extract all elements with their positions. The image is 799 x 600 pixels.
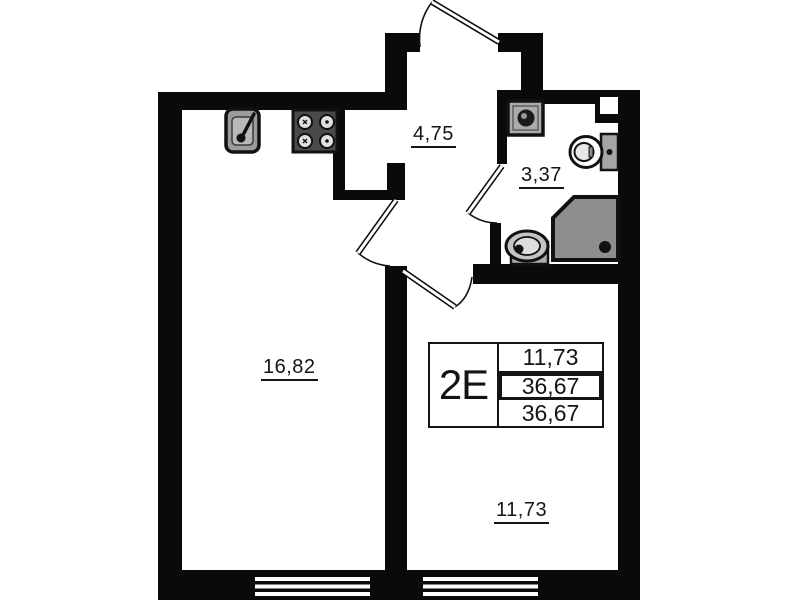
shower-icon [553,197,618,260]
toilet-icon [570,134,618,170]
right-wall [618,90,640,600]
washing-machine-icon [508,101,543,135]
bedroom-door [403,271,472,307]
unit-areas: 11,73 36,67 36,67 [499,344,602,426]
unit-total-area: 36,67 [499,373,602,400]
bedroom-area-label: 11,73 [494,500,549,524]
top-wall [158,92,407,110]
entrance-jamb-left [385,33,420,52]
unit-type-label: 2E [430,344,499,426]
hallway-area-label: 4,75 [411,124,456,148]
kitchen-door [358,200,396,266]
kitchen-living-room-area-label: 16,82 [261,357,318,381]
entrance-door [420,2,500,47]
bathroom-door [468,166,502,223]
window-right-icon [423,577,538,596]
vent-shaft-icon [600,97,618,114]
vestibule-right-wall [521,33,543,94]
left-wall [158,92,182,600]
bathroom-sink-icon [506,231,548,264]
floor-plan-drawing [0,0,799,600]
unit-overall-area: 36,67 [499,400,602,427]
stove-icon [293,110,337,152]
unit-living-area: 11,73 [499,344,602,373]
interroom-wall [385,266,407,570]
floor-plan: 16,82 4,75 3,37 11,73 2E 11,73 36,67 36,… [0,0,799,600]
bathroom-area-label: 3,37 [519,165,564,189]
bathroom-left-wall-upper [497,104,507,164]
kitchen-sink-icon [226,109,259,152]
kitchen-door-pillar [387,163,405,200]
unit-info-table: 2E 11,73 36,67 36,67 [428,342,604,428]
bottom-wall [158,570,640,600]
bedroom-top-wall [473,264,638,284]
window-left-icon [255,577,370,596]
bathroom-left-wall-lower [490,223,501,266]
